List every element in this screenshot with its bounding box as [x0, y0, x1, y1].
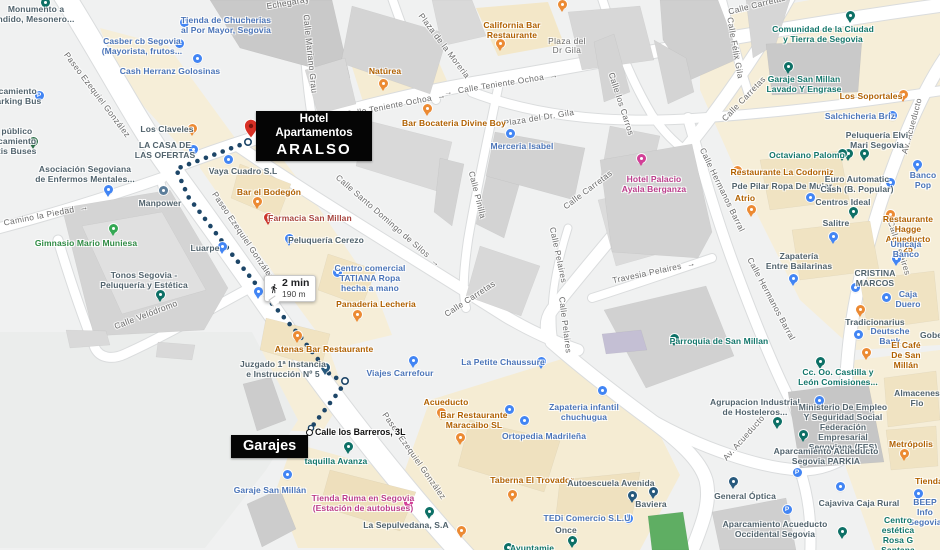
map-pin-icon[interactable] — [344, 442, 353, 451]
poi-label[interactable]: Merceria Isabel — [491, 141, 554, 151]
poi-label[interactable]: Agrupacion Industrial de Hosteleros... — [710, 397, 800, 417]
poi-label[interactable]: Bar el Bodegón — [237, 187, 301, 197]
map-canvas[interactable]: Paseo Ezequiel GonzálezPaseo Ezequiel Go… — [0, 0, 940, 550]
map-pin-icon[interactable] — [505, 405, 514, 414]
poi-label[interactable]: Unicaja Banco — [889, 239, 923, 259]
poi-label[interactable]: Casber cb Segovia (Mayorista, frutos... — [102, 36, 183, 56]
poi-label[interactable]: Los Soportales — [840, 91, 903, 101]
map-pin-icon[interactable] — [423, 104, 432, 113]
map-pin-icon[interactable] — [156, 290, 165, 299]
map-pin-icon[interactable] — [224, 155, 233, 164]
map-pin-icon[interactable] — [900, 449, 909, 458]
poi-label[interactable]: Acueducto — [424, 397, 469, 407]
poi-label[interactable]: Almacenes Flo — [894, 388, 940, 408]
map-pin-icon[interactable] — [353, 310, 362, 319]
destination-address-label[interactable]: Calle los Barreros, 3L — [306, 427, 405, 437]
poi-label[interactable]: California Bar Restaurante — [483, 20, 540, 40]
map-pin-icon[interactable] — [558, 0, 567, 9]
poi-label[interactable]: Tienda de Chucherias al Por Mayor, Segov… — [181, 15, 271, 35]
parking-pin-icon[interactable]: P — [783, 505, 792, 514]
poi-label[interactable]: Bar Bocateria Divine Boy — [402, 118, 506, 128]
poi-label[interactable]: Restaurante La Codorniz — [731, 167, 834, 177]
poi-label[interactable]: Monumento a ndido, Mesonero... — [0, 4, 74, 24]
poi-label[interactable]: Zapateria infantil chuchugua — [549, 402, 619, 422]
poi-label[interactable]: Zapatería Entre Bailarinas — [766, 251, 832, 271]
map-pin-icon[interactable] — [506, 129, 515, 138]
poi-label[interactable]: Centro estética Rosa G Santana — [877, 515, 919, 550]
map-pin-icon[interactable] — [193, 54, 202, 63]
map-pin-icon[interactable] — [747, 205, 756, 214]
poi-label[interactable]: Farmacia San Millan — [268, 213, 352, 223]
poi-label[interactable]: Asociación Segoviana de Enfermos Mentale… — [35, 164, 135, 184]
poi-label[interactable]: Parroquia de San Millan — [670, 336, 769, 346]
poi-label[interactable]: Metrópolis — [889, 439, 933, 449]
map-pin-icon[interactable] — [849, 207, 858, 216]
poi-label[interactable]: Comunidad de la Ciudad y Tierra de Segov… — [772, 24, 874, 44]
poi-label[interactable]: Viajes Carrefour — [366, 368, 433, 378]
map-pin-icon[interactable] — [838, 527, 847, 536]
map-pin-icon[interactable] — [104, 185, 113, 194]
poi-label[interactable]: taquilla Avanza — [305, 456, 368, 466]
map-pin-icon[interactable] — [789, 274, 798, 283]
map-pin-icon[interactable] — [457, 526, 466, 535]
poi-label[interactable]: Banco Pop — [910, 170, 936, 190]
origin-label-line2: ARALSO — [262, 141, 366, 159]
poi-label[interactable]: Hotel Palacio Ayala Berganza — [622, 174, 686, 194]
poi-label[interactable]: TEDi Comercio S.L.U — [544, 513, 631, 523]
map-pin-icon[interactable] — [846, 11, 855, 20]
address-text: Calle los Barreros, 3L — [315, 427, 405, 437]
poi-label[interactable]: Tonos Segovia - Peluquería y Estética — [100, 270, 188, 290]
route-duration-badge: 2 min 190 m — [264, 275, 316, 302]
poi-label[interactable]: Luarpe — [191, 243, 220, 253]
poi-label[interactable]: El Café De San Millán — [889, 340, 923, 370]
poi-label[interactable]: Manpower — [139, 198, 182, 208]
poi-label[interactable]: Garaje San Millan Lavado Y Engrase — [767, 74, 842, 94]
poi-label[interactable]: La Sepulvedana, S.A — [363, 520, 449, 530]
poi-label[interactable]: Once — [555, 525, 577, 535]
poi-label[interactable]: Garaje San Millán — [234, 485, 307, 495]
parking-pin-icon[interactable]: P — [793, 468, 802, 477]
poi-label[interactable]: Aparcamiento Acueducto Occidental Segovi… — [723, 519, 828, 539]
poi-label[interactable]: Euro Automatic Cash (B. Popular) — [820, 174, 893, 194]
map-pin-icon[interactable] — [816, 357, 825, 366]
poi-label[interactable]: Panaderia Lecheria — [336, 299, 416, 309]
map-pin-icon[interactable] — [568, 536, 577, 545]
map-pin-icon[interactable] — [508, 490, 517, 499]
poi-label[interactable]: Baviera — [635, 499, 666, 509]
map-pin-icon[interactable] — [456, 433, 465, 442]
poi-label[interactable]: CRISTINA MARCOS — [843, 268, 908, 288]
destination-marker-label[interactable]: Garajes — [231, 435, 308, 458]
poi-label[interactable]: Salitre — [823, 218, 850, 228]
route-distance: 190 m — [282, 290, 309, 299]
poi-label[interactable]: Caja Duero — [892, 289, 924, 309]
map-pin-icon[interactable] — [854, 330, 863, 339]
destination-label-text: Garajes — [243, 438, 296, 454]
origin-marker-label[interactable]: Hotel Apartamentos ARALSO — [256, 111, 372, 161]
poi-label[interactable]: Peluquería Elvi Mari Segovia — [846, 130, 908, 150]
map-pin-icon[interactable] — [409, 356, 418, 365]
poi-label[interactable]: Cc. Oo. Castilla y León Comisiones... — [798, 367, 878, 387]
map-pin-icon[interactable] — [109, 224, 118, 233]
poi-label[interactable]: Cash Herranz Golosinas — [120, 66, 220, 76]
map-pin-icon[interactable] — [293, 331, 302, 340]
poi-label[interactable]: rcamiento Parking Bus — [0, 86, 41, 106]
map-pin-icon[interactable] — [806, 193, 815, 202]
poi-label[interactable]: Taberna El Trovador — [490, 475, 573, 485]
poi-label[interactable]: Autoescuela Avenida — [567, 478, 654, 488]
poi-label[interactable]: Vaya Cuadro S.L — [209, 166, 278, 176]
map-pin-icon[interactable] — [829, 232, 838, 241]
map-pin-icon[interactable] — [254, 287, 263, 296]
poi-label[interactable]: Natúrea — [369, 66, 401, 76]
poi-label[interactable]: La Petite Chaussure — [461, 357, 545, 367]
map-pin-icon[interactable] — [913, 160, 922, 169]
map-pin-icon[interactable] — [598, 386, 607, 395]
poi-label[interactable]: Ministerio De Empleo Y Seguridad Social … — [795, 402, 892, 452]
map-pin-icon[interactable] — [425, 507, 434, 516]
poi-label[interactable]: Salchicheria Briz — [825, 111, 895, 121]
map-pin-icon[interactable] — [836, 482, 845, 491]
poi-label[interactable]: Atenas Bar Restaurante — [275, 344, 374, 354]
map-pin-icon[interactable] — [729, 477, 738, 486]
poi-label[interactable]: Cajaviva Caja Rural — [819, 498, 900, 508]
map-pin-icon[interactable] — [283, 470, 292, 479]
map-pin-icon[interactable] — [649, 487, 658, 496]
poi-label[interactable]: Ayuntamie — [510, 543, 554, 550]
poi-label[interactable]: Tienda Ruma en Segovia (Estación de auto… — [312, 493, 415, 513]
poi-label[interactable]: Gobe — [920, 330, 940, 340]
poi-label[interactable]: Ortopedia Madrileña — [502, 431, 586, 441]
poi-label[interactable]: Aparcamiento Acueducto Segovia PARKIA — [774, 446, 879, 466]
poi-label[interactable]: Bar Restaurante Maracaibo SL — [440, 410, 507, 430]
map-pin-icon[interactable] — [882, 293, 891, 302]
map-pin-icon[interactable] — [379, 79, 388, 88]
poi-label[interactable]: General Óptica — [714, 491, 776, 501]
walking-person-icon — [269, 282, 279, 295]
poi-label[interactable]: Los Claveles — [140, 124, 193, 134]
poi-label[interactable]: Pde Pilar Ropa De Mujer — [732, 181, 833, 191]
map-pin-icon[interactable] — [637, 154, 646, 163]
route-duration: 2 min — [282, 278, 309, 290]
poi-label[interactable]: Tienda — [915, 476, 940, 486]
map-pin-icon[interactable] — [799, 430, 808, 439]
map-pin-icon[interactable] — [253, 197, 262, 206]
map-pin-icon[interactable] — [862, 348, 871, 357]
origin-label-line1: Hotel Apartamentos — [262, 113, 366, 141]
map-pin-icon[interactable] — [773, 417, 782, 426]
poi-label[interactable]: Juzgado 1ª Instancia e Instrucción Nº 5 — [240, 359, 326, 379]
poi-label[interactable]: Octaviano Palomo — [769, 150, 845, 160]
map-pin-icon[interactable] — [784, 62, 793, 71]
poi-label[interactable]: LA CASA DE LAS OFERTAS — [135, 140, 195, 160]
map-pin-icon[interactable] — [856, 305, 865, 314]
poi-label[interactable]: o público ercamiento ratis Buses — [0, 126, 36, 156]
poi-label[interactable]: Peluquería Cerezo — [288, 235, 364, 245]
poi-label[interactable]: Gimnasio Mario Muniesa — [35, 238, 137, 248]
poi-label[interactable]: Centros Ideal — [815, 197, 870, 207]
map-pin-icon[interactable] — [520, 416, 529, 425]
map-pin-icon[interactable] — [159, 186, 168, 195]
poi-label[interactable]: Atrio — [735, 193, 755, 203]
poi-label[interactable]: Centro comercial TATIANA Ropa hecha a ma… — [334, 263, 405, 293]
